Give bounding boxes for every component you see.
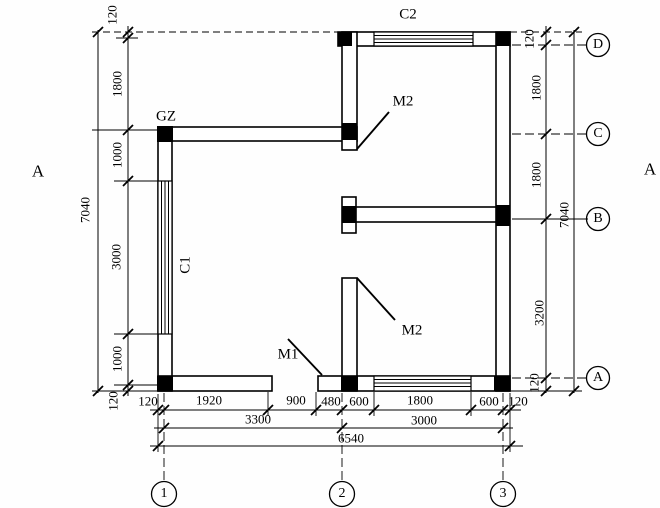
dim-bottom-600-b: 600 <box>479 395 499 408</box>
wall-upper-left <box>158 127 357 141</box>
dim-left-120-top: 120 <box>106 5 119 25</box>
plan-linework <box>0 0 660 508</box>
floor-plan-drawing: 120 1800 1000 3000 1000 120 7040 120 180… <box>0 0 660 508</box>
column-gz <box>157 126 173 142</box>
dim-bottom-120-r: 120 <box>508 395 528 408</box>
dim-bottom-480: 480 <box>321 395 341 408</box>
dim-bottom-3000: 3000 <box>411 414 437 427</box>
dim-left-1800: 1800 <box>111 71 124 97</box>
dim-right-3200: 3200 <box>533 300 546 326</box>
column-bottom-left <box>157 376 173 391</box>
label-door-m1: M1 <box>278 348 299 363</box>
window-c1 <box>158 181 172 334</box>
axis-letter-a: A <box>593 371 603 385</box>
wall-axis2-lower <box>342 278 357 391</box>
dim-left-120-bot: 120 <box>107 391 120 411</box>
label-door-m2-lower: M2 <box>402 324 423 339</box>
dim-right-1800-a: 1800 <box>530 75 543 101</box>
dim-bottom-1920: 1920 <box>196 394 222 407</box>
dim-right-120-bot: 120 <box>528 373 541 393</box>
axis-letter-c: C <box>593 127 602 141</box>
dim-right-total: 7040 <box>558 202 571 228</box>
label-window-c2: C2 <box>399 8 417 23</box>
axis-letter-d: D <box>593 38 603 52</box>
section-mark-left: A <box>32 163 44 180</box>
column-top-axis2 <box>338 32 352 46</box>
wall-bottom-left <box>158 376 272 391</box>
walls <box>158 32 510 391</box>
wall-row-b <box>356 207 496 222</box>
dim-right-120-top: 120 <box>523 29 536 49</box>
label-window-c1: C1 <box>179 256 194 274</box>
column-axis2-row-c <box>342 123 357 140</box>
section-mark-right: A <box>644 161 656 178</box>
door-m2-lower-leaf <box>357 278 395 320</box>
axis-number-2: 2 <box>339 487 346 501</box>
axis-bubbles <box>152 34 610 507</box>
dim-left-3000: 3000 <box>110 244 123 270</box>
dim-bottom-1800: 1800 <box>407 394 433 407</box>
dim-bottom-900: 900 <box>286 394 306 407</box>
column-right-row-b <box>496 205 510 226</box>
window-bottom <box>374 376 471 391</box>
dim-bottom-120-l: 120 <box>138 395 158 408</box>
dim-right-1800-b: 1800 <box>530 162 543 188</box>
column-bottom-axis2 <box>341 376 358 391</box>
column-axis2-row-b <box>342 206 356 223</box>
label-door-m2-upper: M2 <box>393 95 414 110</box>
dim-left-1000-a: 1000 <box>111 142 124 168</box>
door-m2-upper-leaf <box>357 112 389 149</box>
dim-bottom-600-a: 600 <box>349 395 369 408</box>
dim-left-1000-b: 1000 <box>111 346 124 372</box>
axis-letter-b: B <box>593 212 602 226</box>
dim-bottom-3300: 3300 <box>245 413 271 426</box>
dim-left-total: 7040 <box>79 197 92 223</box>
axis-number-1: 1 <box>161 487 168 501</box>
dim-bottom-total: 6540 <box>338 432 364 445</box>
column-top-right <box>496 32 510 46</box>
label-gz-column: GZ <box>156 110 176 125</box>
axis-number-3: 3 <box>500 487 507 501</box>
window-c2-top <box>374 32 473 46</box>
column-bottom-right <box>494 376 510 391</box>
